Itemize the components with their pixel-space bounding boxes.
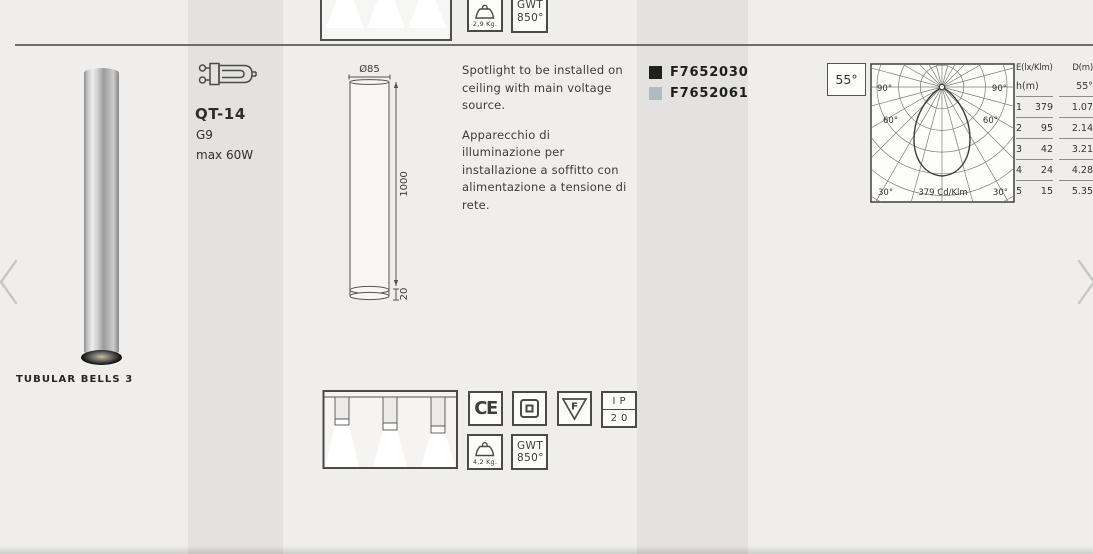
gwt-label: GWT [517,0,543,12]
f-mark-letter: F [571,401,578,412]
finish-swatch-grey [649,87,662,100]
subheader-h: h(m) [1016,81,1053,92]
height-dim-label: 1000 [399,171,410,196]
lamp-power: max 60W [196,148,253,162]
weight-box: 4,2 Kg. [467,434,503,470]
weight-value: 4,2 Kg. [473,458,497,468]
table-row: 1 379 1.07 [1016,97,1093,118]
gwt-temp: 850° [517,452,544,465]
angle-label-90-left: 90° [877,84,892,94]
lamp-type: QT-14 [195,105,246,123]
g9-bulb-icon [196,60,262,88]
light-beam-shape [326,0,364,28]
description-italian: Apparecchio di illuminazione per install… [462,127,630,215]
previous-product-beams-drawing [320,0,452,41]
f-mark-icon: F [557,391,592,426]
table-row: 4 24 4.28 [1016,160,1093,181]
product-name: TUBULAR BELLS 3 [16,374,133,385]
ip-value: 20 [603,410,635,426]
beam-angle-box: 55° [827,63,866,96]
row-divider [15,44,1093,46]
ce-mark-icon: CE [468,391,503,426]
class2-insulation-icon [512,391,547,426]
subheader-angle: 55° [1053,81,1093,92]
dimension-drawing: Ø85 1000 20 [340,58,422,308]
table-row: 2 95 2.14 [1016,118,1093,139]
product-code: F7652061 [670,86,749,101]
angle-label-30-right: 30° [993,188,1008,198]
chevron-right-icon[interactable] [1076,258,1093,306]
table-header: E(lx/Klm) D(m) [1016,60,1093,76]
light-beam-shape [367,0,405,28]
finish-swatch-black [649,66,662,79]
weight-icon [473,3,497,20]
product-photo-tube [84,68,119,356]
previous-weight-box: 2,9 Kg. [467,0,503,32]
description-english: Spotlight to be installed on ceiling wit… [462,62,630,115]
weight-value: 2,9 Kg. [473,20,497,30]
photometric-diagram: 90° 90° 60° 60° 30° 30° 379 Cd/Klm [870,63,1015,203]
angle-label-60-right: 60° [983,116,998,126]
previous-gwt-box: GWT 850° [511,0,548,33]
table-row: 3 42 3.21 [1016,139,1093,160]
lamp-socket: G9 [196,128,213,142]
table-subheader: h(m) 55° [1016,76,1093,97]
glow-wire-test-box: GWT 850° [511,434,548,470]
weight-icon [473,440,497,458]
page-bottom-shadow [0,546,1093,554]
header-e: E(lx/Klm) [1016,63,1053,73]
product-code: F7652030 [670,65,749,80]
product-codes: F7652030 F7652061 [649,65,749,107]
angle-label-30-left: 30° [878,188,893,198]
diameter-label: Ø85 [359,63,380,75]
illuminance-table: E(lx/Klm) D(m) h(m) 55° 1 379 1.07 2 95 … [1016,60,1093,202]
angle-label-90-right: 90° [992,84,1007,94]
product-photo-tube-cap [81,350,122,365]
product-description: Spotlight to be installed on ceiling wit… [462,56,630,226]
gwt-temp: 850° [517,12,544,25]
header-d: D(m) [1072,63,1093,73]
ip-rating-icon: IP 20 [601,391,637,428]
max-intensity-label: 379 Cd/Klm [918,188,967,198]
angle-label-60-left: 60° [883,116,898,126]
code-row: F7652030 [649,65,749,79]
gwt-label: GWT [517,440,543,453]
code-row: F7652061 [649,86,749,100]
ip-label: IP [603,393,635,410]
triple-spotlight-drawing [322,388,459,471]
chevron-left-icon[interactable] [0,258,21,306]
catalog-page: 2,9 Kg. GWT 850° TUBULAR BELLS 3 QT-14 G… [0,0,1093,554]
table-row: 5 15 5.35 [1016,181,1093,202]
base-dim-label: 20 [399,288,410,301]
light-beam-shape [408,0,446,28]
